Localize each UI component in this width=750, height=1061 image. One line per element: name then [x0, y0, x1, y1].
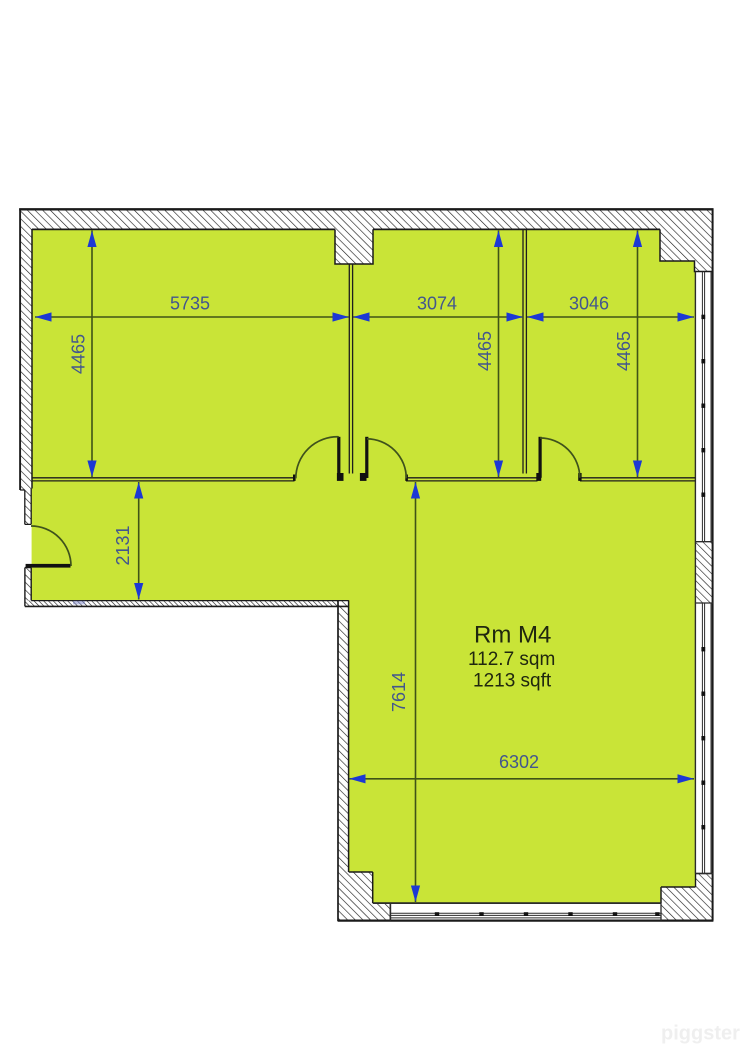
svg-text:4465: 4465 [475, 331, 495, 371]
svg-text:2131: 2131 [113, 525, 133, 565]
svg-text:5735: 5735 [170, 294, 210, 314]
svg-text:7614: 7614 [389, 672, 409, 712]
svg-text:3046: 3046 [569, 294, 609, 314]
svg-text:Rm M4: Rm M4 [474, 622, 551, 649]
svg-text:4465: 4465 [69, 334, 89, 374]
svg-text:6302: 6302 [499, 752, 539, 772]
svg-text:piggster: piggster [661, 1023, 740, 1045]
svg-text:112.7 sqm: 112.7 sqm [468, 649, 555, 670]
svg-text:3074: 3074 [417, 294, 457, 314]
svg-text:1213 sqft: 1213 sqft [473, 671, 552, 692]
svg-text:4465: 4465 [614, 331, 634, 371]
